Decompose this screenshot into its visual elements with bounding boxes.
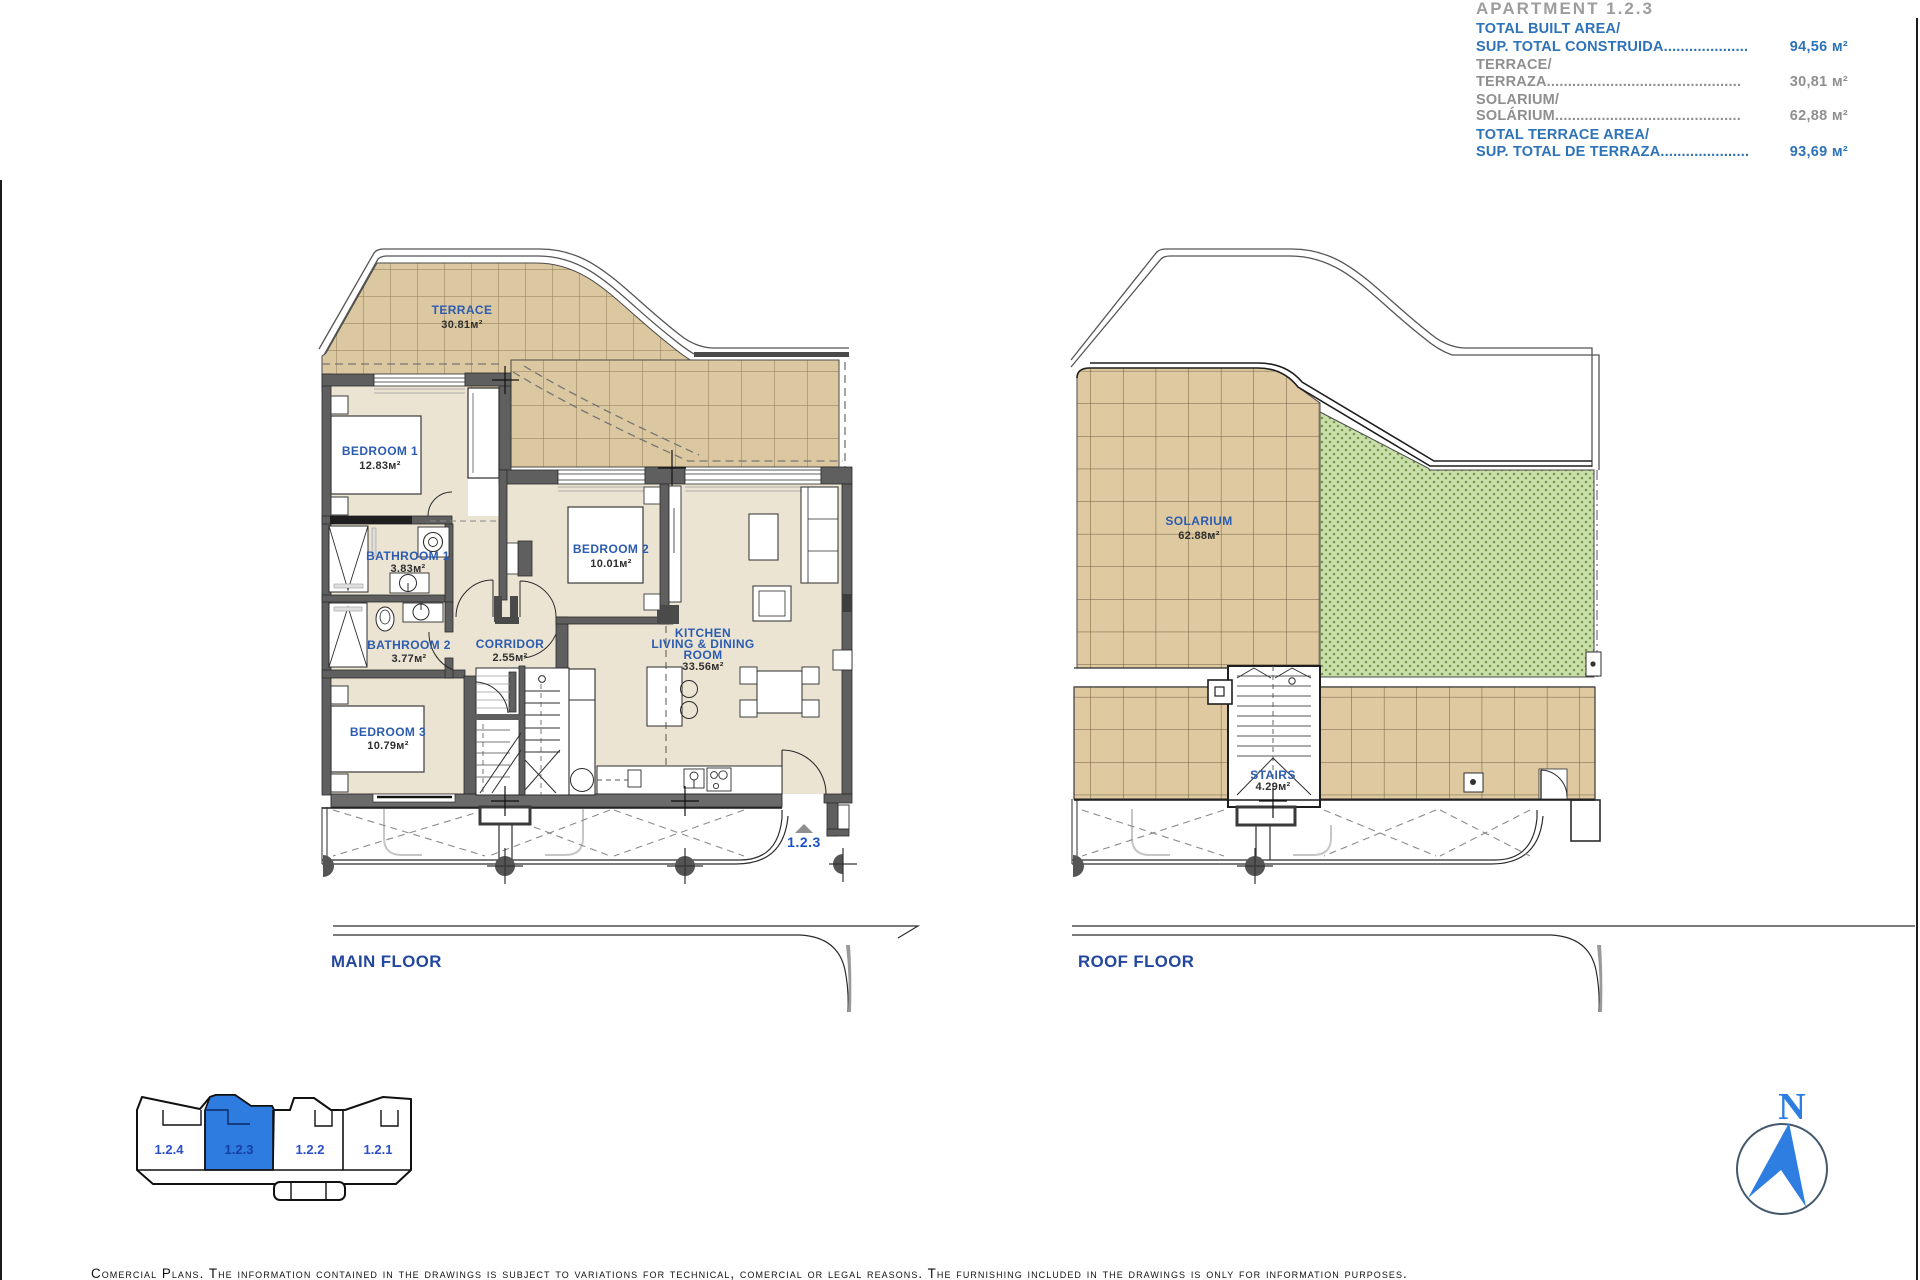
svg-text:30,81 м²: 30,81 м² [1790,74,1848,90]
svg-text:MAIN FLOOR: MAIN FLOOR [331,952,442,971]
svg-text:1.2.3: 1.2.3 [225,1142,254,1157]
svg-text:N: N [1778,1086,1805,1128]
svg-text:ROOF FLOOR: ROOF FLOOR [1078,952,1194,971]
svg-text:1.2.2: 1.2.2 [296,1142,325,1157]
svg-text:SOLÁRIUM......................: SOLÁRIUM................................… [1476,107,1741,124]
svg-text:TERRAZA.......................: TERRAZA.................................… [1476,74,1741,90]
svg-text:1.2.1: 1.2.1 [364,1142,393,1157]
svg-text:Comercial Plans. The informati: Comercial Plans. The information contain… [91,1266,1408,1280]
svg-text:BATHROOM 2: BATHROOM 2 [367,638,451,652]
svg-text:ROOM: ROOM [684,648,723,662]
svg-text:BEDROOM 1: BEDROOM 1 [342,444,418,458]
svg-text:SUP. TOTAL CONSTRUIDA.........: SUP. TOTAL CONSTRUIDA...................… [1476,39,1748,55]
svg-text:SOLARIUM/: SOLARIUM/ [1476,92,1559,108]
svg-text:CORRIDOR: CORRIDOR [476,637,545,651]
svg-text:3.83м²: 3.83м² [390,563,425,575]
svg-text:3.77м²: 3.77м² [391,653,426,665]
svg-text:STAIRS: STAIRS [1250,768,1296,782]
svg-text:BEDROOM 2: BEDROOM 2 [573,542,649,556]
svg-text:TERRACE/: TERRACE/ [1476,57,1552,73]
svg-text:BEDROOM 3: BEDROOM 3 [350,725,426,739]
svg-text:APARTMENT 1.2.3: APARTMENT 1.2.3 [1476,0,1654,18]
svg-text:93,69 м²: 93,69 м² [1790,144,1848,160]
svg-text:BATHROOM 1: BATHROOM 1 [366,549,450,563]
svg-text:94,56 м²: 94,56 м² [1790,39,1848,55]
svg-text:30.81м²: 30.81м² [441,319,482,331]
svg-text:TERRACE: TERRACE [432,303,493,317]
svg-text:12.83м²: 12.83м² [359,460,400,472]
svg-text:4.29м²: 4.29м² [1255,781,1290,793]
svg-text:10.79м²: 10.79м² [367,740,408,752]
svg-text:1.2.4: 1.2.4 [155,1142,185,1157]
svg-text:TOTAL BUILT AREA/: TOTAL BUILT AREA/ [1476,21,1620,37]
svg-text:10.01м²: 10.01м² [590,558,631,570]
svg-text:1.2.3: 1.2.3 [787,834,821,850]
svg-text:2.55м²: 2.55м² [492,652,527,664]
svg-text:33.56м²: 33.56м² [682,661,723,673]
svg-text:62,88 м²: 62,88 м² [1790,108,1848,124]
svg-text:SOLARIUM: SOLARIUM [1165,514,1232,528]
svg-text:TOTAL TERRACE AREA/: TOTAL TERRACE AREA/ [1476,127,1649,143]
svg-text:SUP. TOTAL DE TERRAZA.........: SUP. TOTAL DE TERRAZA...................… [1476,144,1749,160]
svg-text:62.88м²: 62.88м² [1178,530,1219,542]
